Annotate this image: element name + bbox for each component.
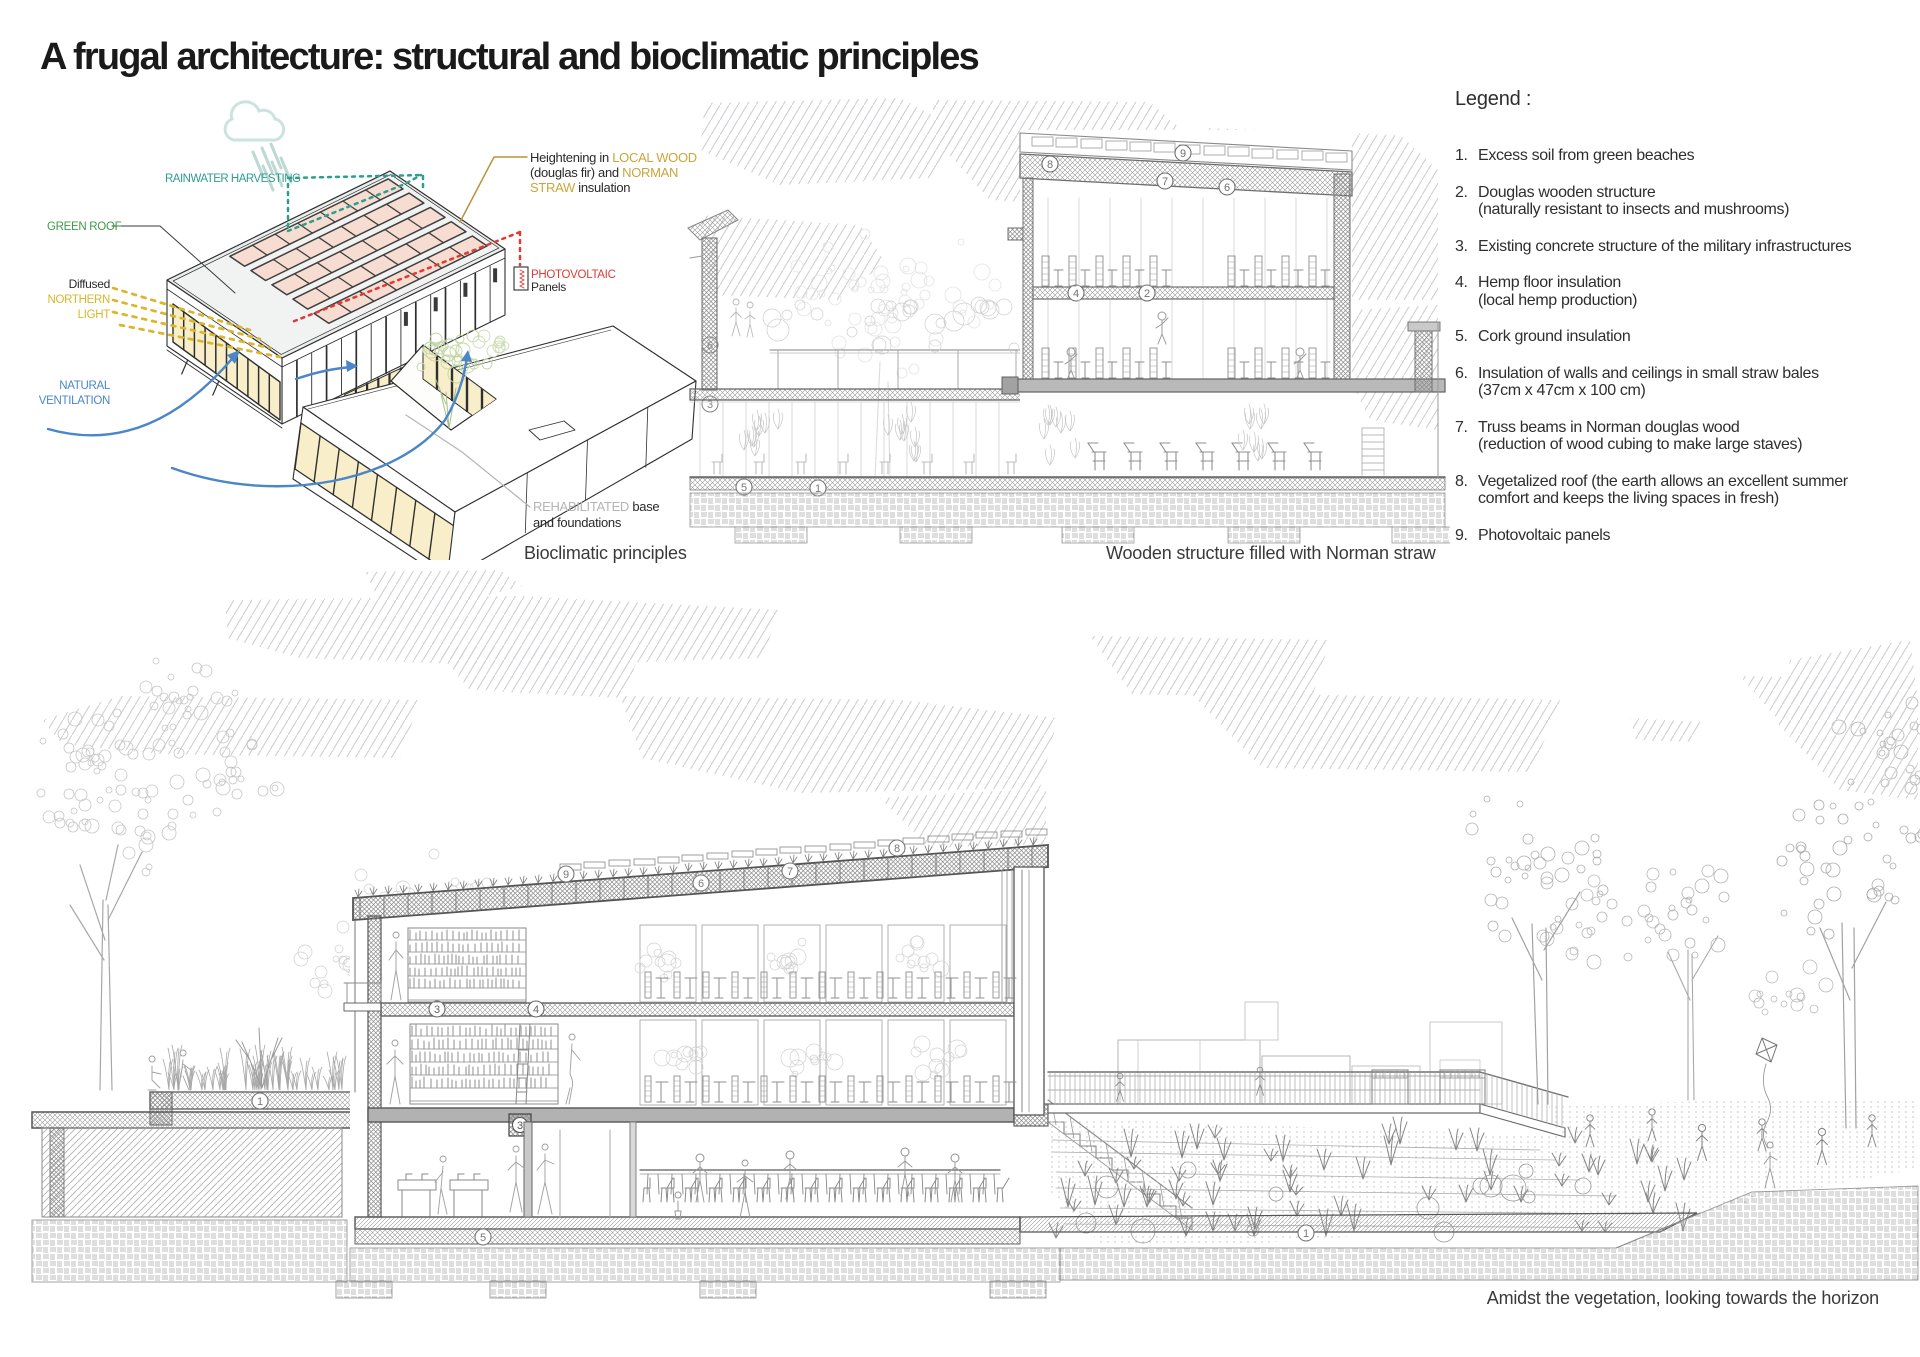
svg-text:8: 8 <box>894 843 900 855</box>
svg-text:GREEN ROOF: GREEN ROOF <box>47 221 122 233</box>
svg-text:9: 9 <box>1180 148 1186 160</box>
svg-text:2: 2 <box>1144 288 1150 300</box>
svg-text:(douglas fir) and NORMAN: (douglas fir) and NORMAN <box>530 165 678 180</box>
svg-text:NORTHERN: NORTHERN <box>47 294 110 306</box>
svg-text:6: 6 <box>698 878 704 890</box>
svg-text:5: 5 <box>741 482 747 494</box>
svg-text:6: 6 <box>707 340 713 352</box>
svg-text:4: 4 <box>533 1004 539 1016</box>
svg-text:LIGHT: LIGHT <box>78 309 111 321</box>
svg-text:6: 6 <box>1224 182 1230 194</box>
svg-text:STRAW insulation: STRAW insulation <box>530 180 630 195</box>
svg-text:RAINWATER HARVESTING: RAINWATER HARVESTING <box>165 173 301 185</box>
svg-text:1: 1 <box>257 1096 263 1108</box>
svg-text:4: 4 <box>1073 288 1079 300</box>
svg-text:7: 7 <box>1162 176 1168 188</box>
svg-text:Panels: Panels <box>531 280 566 294</box>
svg-text:VENTILATION: VENTILATION <box>39 395 110 407</box>
svg-text:Heightening in LOCAL WOOD: Heightening in LOCAL WOOD <box>530 150 697 165</box>
svg-text:REHABILITATED base: REHABILITATED base <box>533 499 659 514</box>
svg-text:3: 3 <box>434 1004 440 1016</box>
svg-text:3: 3 <box>517 1120 523 1132</box>
svg-text:3: 3 <box>707 399 713 411</box>
svg-text:1: 1 <box>1303 1228 1309 1240</box>
svg-text:and foundations: and foundations <box>533 515 622 530</box>
svg-text:8: 8 <box>1047 159 1053 171</box>
svg-text:5: 5 <box>480 1232 486 1244</box>
svg-text:Diffused: Diffused <box>69 277 110 291</box>
svg-text:NATURAL: NATURAL <box>59 380 111 392</box>
svg-text:7: 7 <box>787 866 793 878</box>
svg-text:9: 9 <box>563 869 569 881</box>
